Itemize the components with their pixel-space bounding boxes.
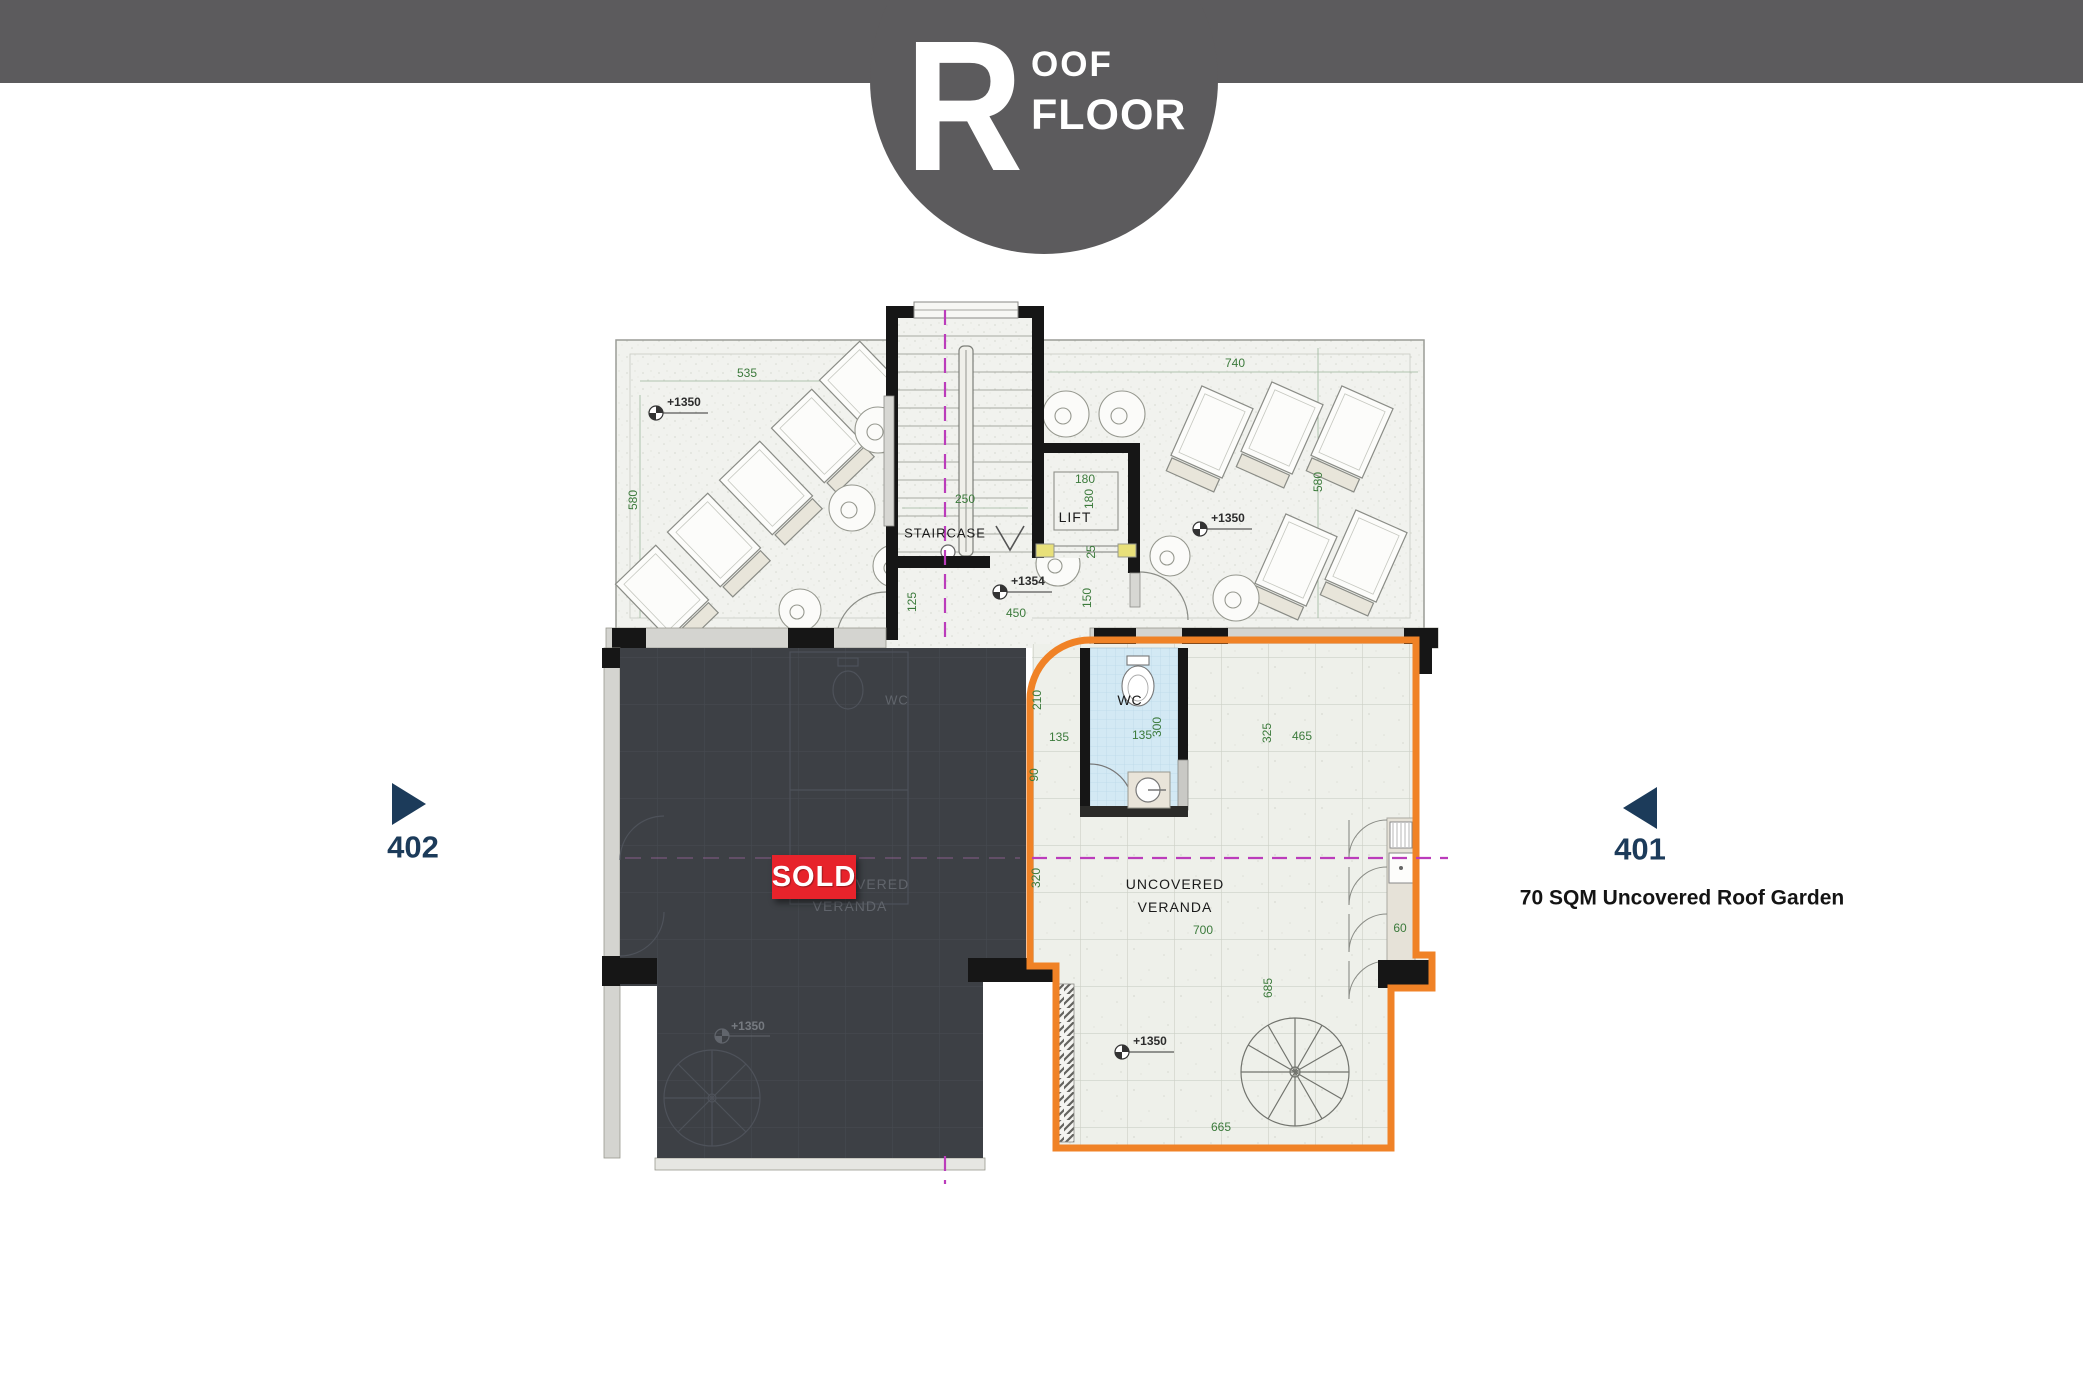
lift-label: LIFT: [1059, 510, 1092, 524]
dim-terrace-right: 580: [1312, 472, 1324, 492]
floorplan-page: R OOF FLOOR STAIRCASE LIFT WC UNCOVERED …: [0, 0, 2083, 1400]
dim-veranda-bottom: 665: [1211, 1121, 1231, 1133]
dim-landing-width: 450: [1006, 607, 1026, 619]
dim-terrace-left: 580: [627, 490, 639, 510]
level-landing: +1354: [1011, 575, 1045, 587]
dim-stair-width: 250: [955, 493, 975, 505]
unit-401-subtitle: 70 SQM Uncovered Roof Garden: [1520, 888, 1844, 909]
staircase-room: [884, 302, 1044, 640]
dim-kitchen-60: 60: [1393, 922, 1406, 934]
wc-402-label: WC: [885, 694, 909, 707]
wc-401-label: WC: [1117, 693, 1142, 707]
spiral-staircase: [1241, 1018, 1349, 1126]
veranda-401-label-line1: UNCOVERED: [1126, 877, 1224, 891]
level-veranda-401: +1350: [1133, 1035, 1167, 1047]
dim-veranda-325: 325: [1261, 723, 1273, 743]
dim-stair-side: 125: [906, 592, 918, 612]
dim-lift-width: 180: [1075, 473, 1095, 485]
veranda-401-label-line2: VERANDA: [1138, 900, 1213, 914]
dim-lift-depth: 180: [1083, 489, 1095, 509]
dim-edge-210: 210: [1031, 690, 1043, 710]
dim-terrace-top-left: 535: [737, 367, 757, 379]
level-veranda-402: +1350: [731, 1020, 765, 1032]
floor-badge-title-rest: OOF: [1031, 47, 1113, 82]
dim-veranda-width: 700: [1193, 924, 1213, 936]
veranda-402-label-line2: VERANDA: [813, 899, 888, 913]
level-terrace-right: +1350: [1211, 512, 1245, 524]
dim-terrace-top-right: 740: [1225, 357, 1245, 369]
level-terrace-left: +1350: [667, 396, 701, 408]
dim-wc-depth: 300: [1151, 717, 1163, 737]
dim-lift-door: 25: [1085, 545, 1097, 558]
unit-401-region[interactable]: [1032, 644, 1432, 1148]
dim-edge-90: 90: [1028, 768, 1040, 781]
floor-badge-title-line2: FLOOR: [1031, 94, 1186, 137]
dim-landing-depth: 150: [1081, 588, 1093, 608]
dim-wc-offset: 135: [1049, 731, 1069, 743]
dim-edge-320: 320: [1030, 868, 1042, 888]
unit-402-link[interactable]: 402: [387, 832, 439, 863]
dim-wc-width: 135: [1132, 729, 1152, 741]
unit-401-arrow-icon[interactable]: [1623, 787, 1657, 829]
floor-badge-initial: R: [905, 14, 1023, 200]
dim-veranda-depth: 685: [1262, 978, 1274, 998]
unit-402-arrow-icon[interactable]: [392, 783, 426, 825]
staircase-label: STAIRCASE: [904, 527, 986, 540]
unit-401-link[interactable]: 401: [1614, 834, 1666, 865]
dim-veranda-465: 465: [1292, 730, 1312, 742]
sold-badge: SOLD: [772, 855, 856, 899]
